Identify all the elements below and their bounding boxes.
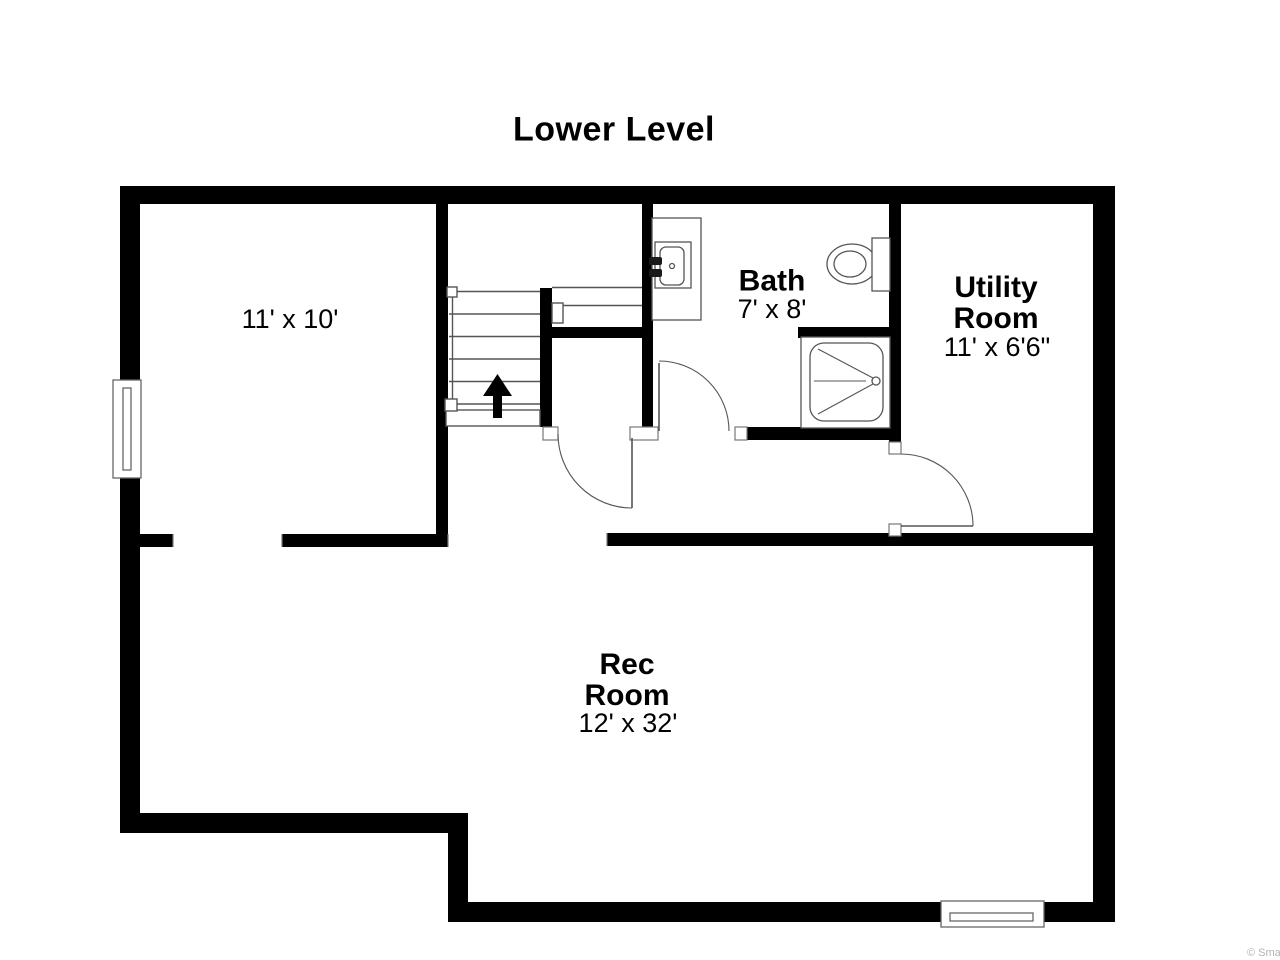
wall-bath-bottom [747, 427, 889, 440]
sink-drain [670, 264, 675, 269]
watermark: © Smar [1247, 947, 1280, 959]
door-jamb [889, 442, 901, 454]
stair-post [552, 303, 563, 323]
door-jamb [735, 427, 747, 440]
door-utility [901, 454, 973, 526]
toilet-bowl-inner [834, 251, 866, 277]
door-jamb [543, 427, 558, 440]
door-jamb [889, 524, 901, 536]
window-left-icon [113, 380, 141, 478]
floor-plan: Lower Level 11' x 10' Bath 7' x 8' Utili… [0, 0, 1280, 960]
wall-bath-right [889, 204, 901, 444]
window-bottom-icon [941, 901, 1044, 927]
plan-title: Lower Level [513, 111, 715, 150]
wall-left [120, 186, 140, 833]
utility-room-dims: 11' x 6'6" [944, 333, 1050, 361]
bath-label: Bath [739, 266, 806, 297]
door-swing-arc [901, 454, 973, 526]
door-swing-arc [659, 361, 729, 431]
wall-bath-left [642, 204, 653, 427]
utility-room-label: Utility Room [954, 272, 1039, 334]
door-jamb [630, 427, 658, 440]
wall-room1-right [436, 204, 448, 547]
toilet-icon [827, 238, 890, 291]
wall-rec-divider-right [607, 533, 1093, 546]
room-11x10-dims: 11' x 10' [242, 305, 339, 333]
shower-icon [801, 337, 890, 428]
vanity-sink-icon [649, 218, 701, 320]
faucet-handle [649, 257, 662, 265]
door-swing-arc [558, 434, 632, 508]
wall-landing-bottom [540, 327, 652, 338]
faucet-handle [649, 269, 662, 277]
arrow-shaft [493, 393, 502, 418]
shower-drain [872, 377, 880, 385]
interior-walls [140, 204, 1093, 547]
window-sash [950, 913, 1033, 921]
wall-rec-divider-mid [282, 534, 448, 547]
door-jambs [543, 427, 901, 536]
toilet-tank [872, 238, 890, 291]
stair-post [445, 399, 457, 411]
wall-right [1093, 186, 1115, 922]
door-bath [659, 361, 729, 431]
wall-rec-divider-stub [140, 534, 173, 547]
window-sash [123, 388, 131, 470]
bath-dims: 7' x 8' [738, 295, 807, 323]
arrow-head [483, 374, 512, 396]
wall-stairs-right [540, 288, 552, 427]
rec-room-dims: 12' x 32' [579, 709, 678, 737]
wall-top [120, 186, 1115, 204]
wall-bottom-left [120, 813, 468, 833]
door-hall [558, 434, 632, 508]
stair-post [447, 287, 457, 297]
rec-room-label: Rec Room [585, 649, 670, 711]
